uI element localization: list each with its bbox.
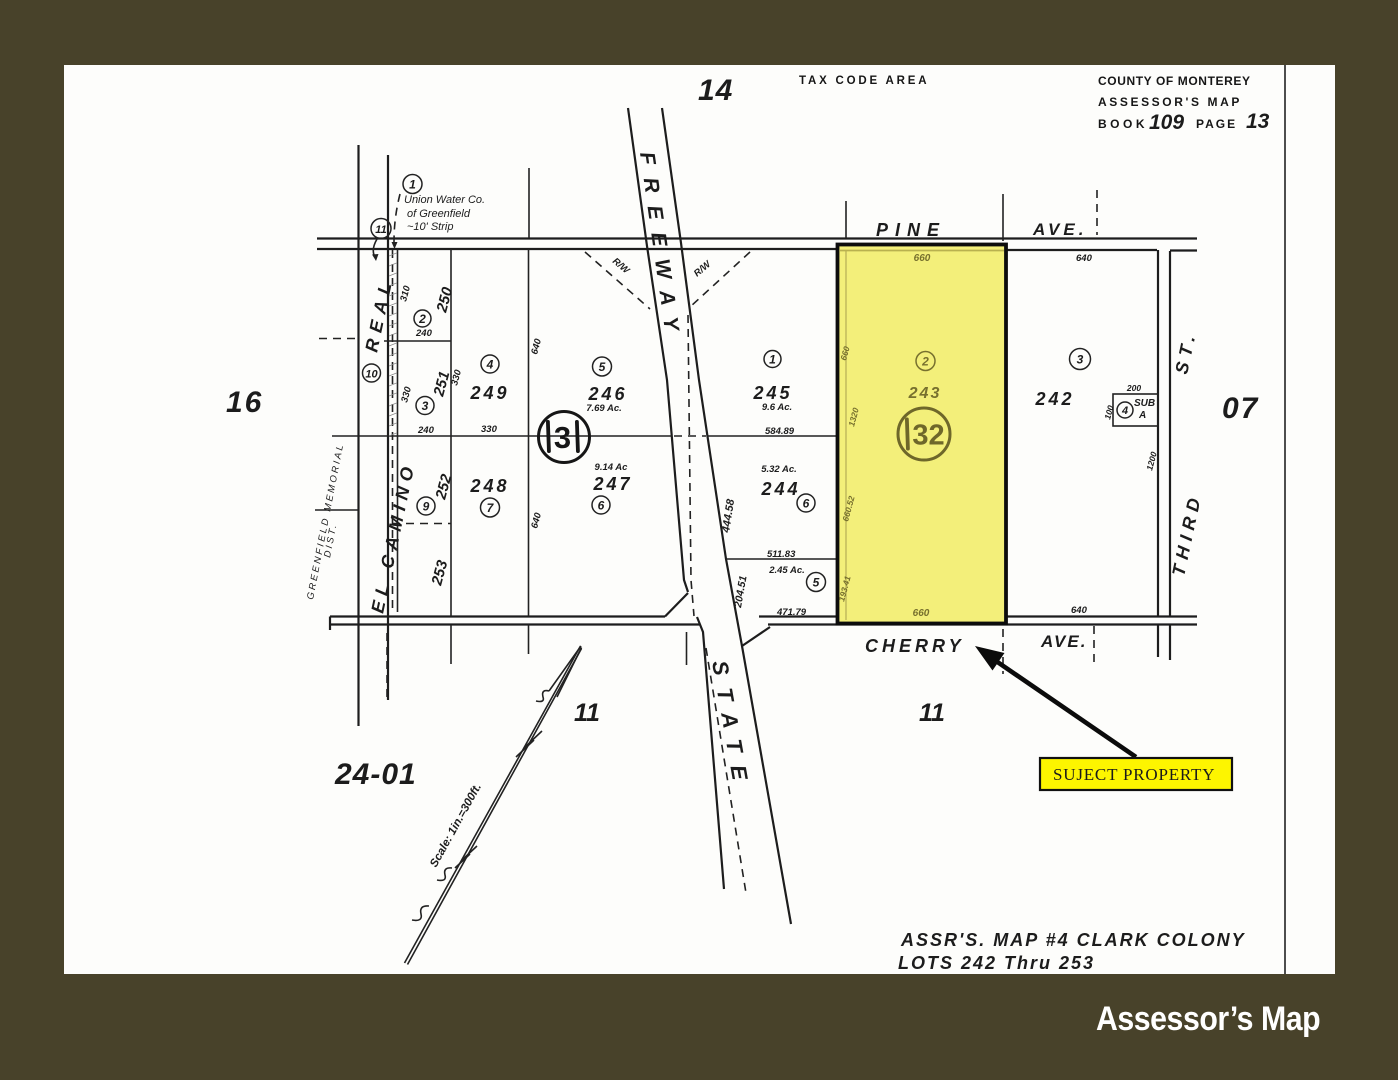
- svg-text:5: 5: [813, 576, 820, 590]
- svg-text:3: 3: [554, 420, 571, 455]
- svg-text:PAGE: PAGE: [1196, 117, 1237, 131]
- svg-text:ST.: ST.: [1171, 328, 1200, 376]
- svg-text:GREENFIELD MEMORIAL: GREENFIELD MEMORIAL: [305, 442, 346, 601]
- svg-text:247: 247: [592, 474, 632, 494]
- svg-text:10: 10: [365, 369, 378, 381]
- svg-text:243: 243: [908, 385, 942, 402]
- svg-text:CHERRY: CHERRY: [865, 636, 965, 656]
- svg-text:252: 252: [432, 472, 455, 502]
- svg-text:AVE.: AVE.: [1040, 632, 1087, 651]
- svg-text:248: 248: [469, 476, 509, 496]
- svg-text:11: 11: [375, 224, 386, 236]
- svg-text:of Greenfield: of Greenfield: [407, 208, 471, 220]
- svg-text:6: 6: [598, 499, 605, 513]
- svg-text:SUJECT PROPERTY: SUJECT PROPERTY: [1053, 765, 1215, 784]
- svg-text:5.32 Ac.: 5.32 Ac.: [761, 464, 797, 475]
- svg-text:640: 640: [1076, 253, 1093, 264]
- svg-text:310: 310: [398, 284, 413, 303]
- svg-text:109: 109: [1149, 111, 1184, 134]
- svg-text:16: 16: [226, 386, 263, 419]
- svg-text:Union Water Co.: Union Water Co.: [404, 194, 485, 206]
- svg-text:COUNTY OF MONTEREY: COUNTY OF MONTEREY: [1098, 74, 1251, 88]
- svg-text:9.6 Ac.: 9.6 Ac.: [762, 402, 792, 413]
- svg-text:249: 249: [469, 383, 509, 403]
- svg-text:~10' Strip: ~10' Strip: [407, 221, 453, 233]
- svg-text:32: 32: [912, 420, 944, 452]
- svg-text:R/W: R/W: [692, 258, 714, 279]
- svg-text:24-01: 24-01: [334, 758, 417, 791]
- svg-text:ASSR'S. MAP #4 CLARK COLONY: ASSR'S. MAP #4 CLARK COLONY: [900, 930, 1246, 950]
- svg-text:11: 11: [919, 699, 945, 727]
- svg-text:1200: 1200: [1144, 450, 1159, 471]
- svg-text:1: 1: [769, 353, 776, 367]
- svg-text:660: 660: [913, 608, 930, 619]
- svg-text:BOOK: BOOK: [1098, 117, 1148, 131]
- svg-text:640: 640: [1071, 605, 1088, 616]
- svg-text:7: 7: [487, 501, 495, 515]
- svg-text:4: 4: [486, 358, 494, 372]
- svg-text:253: 253: [428, 558, 451, 588]
- svg-text:240: 240: [415, 328, 433, 339]
- svg-text:471.79: 471.79: [776, 607, 807, 618]
- svg-text:LOTS 242 Thru 253: LOTS 242 Thru 253: [898, 953, 1095, 973]
- svg-text:250: 250: [433, 285, 456, 315]
- svg-text:244: 244: [760, 479, 800, 499]
- svg-text:2: 2: [418, 312, 426, 326]
- svg-text:5: 5: [599, 360, 606, 374]
- svg-text:9: 9: [423, 500, 430, 514]
- svg-text:07: 07: [1222, 392, 1259, 425]
- svg-text:2: 2: [921, 355, 929, 369]
- svg-text:14: 14: [698, 74, 733, 107]
- svg-text:AVE.: AVE.: [1032, 220, 1087, 239]
- svg-text:6: 6: [803, 497, 810, 511]
- svg-text:7.69 Ac.: 7.69 Ac.: [586, 403, 622, 414]
- svg-text:PINE: PINE: [876, 220, 946, 240]
- svg-text:3: 3: [1077, 353, 1084, 367]
- svg-text:330: 330: [481, 424, 498, 435]
- svg-text:4: 4: [1121, 405, 1128, 417]
- svg-text:584.89: 584.89: [765, 426, 795, 437]
- svg-text:THIRD: THIRD: [1168, 491, 1205, 578]
- svg-text:3: 3: [422, 399, 429, 413]
- svg-text:240: 240: [417, 425, 435, 436]
- svg-text:ASSESSOR'S MAP: ASSESSOR'S MAP: [1098, 95, 1242, 109]
- svg-text:204.51: 204.51: [732, 575, 750, 610]
- svg-text:640: 640: [529, 337, 544, 356]
- svg-text:444.58: 444.58: [720, 497, 737, 534]
- svg-text:1: 1: [409, 178, 416, 192]
- svg-text:511.83: 511.83: [767, 549, 796, 560]
- svg-text:11: 11: [574, 699, 600, 727]
- svg-text:R/W: R/W: [610, 256, 632, 277]
- svg-text:640: 640: [529, 511, 544, 530]
- svg-text:A: A: [1138, 410, 1146, 421]
- svg-text:246: 246: [587, 384, 627, 404]
- svg-text:2.45 Ac.: 2.45 Ac.: [768, 565, 805, 576]
- svg-text:Scale: 1in.=300ft.: Scale: 1in.=300ft.: [428, 782, 484, 870]
- svg-text:FREEWAY: FREEWAY: [635, 150, 685, 345]
- svg-text:REAL: REAL: [361, 274, 397, 353]
- svg-text:9.14 Ac: 9.14 Ac: [595, 462, 629, 473]
- svg-text:SUB: SUB: [1134, 398, 1155, 409]
- svg-text:330: 330: [399, 385, 414, 404]
- svg-text:242: 242: [1034, 389, 1074, 409]
- svg-text:200: 200: [1126, 383, 1141, 393]
- svg-text:245: 245: [752, 383, 792, 403]
- svg-text:13: 13: [1246, 110, 1270, 133]
- svg-text:TAX CODE AREA: TAX CODE AREA: [799, 75, 929, 87]
- svg-text:660: 660: [914, 253, 931, 264]
